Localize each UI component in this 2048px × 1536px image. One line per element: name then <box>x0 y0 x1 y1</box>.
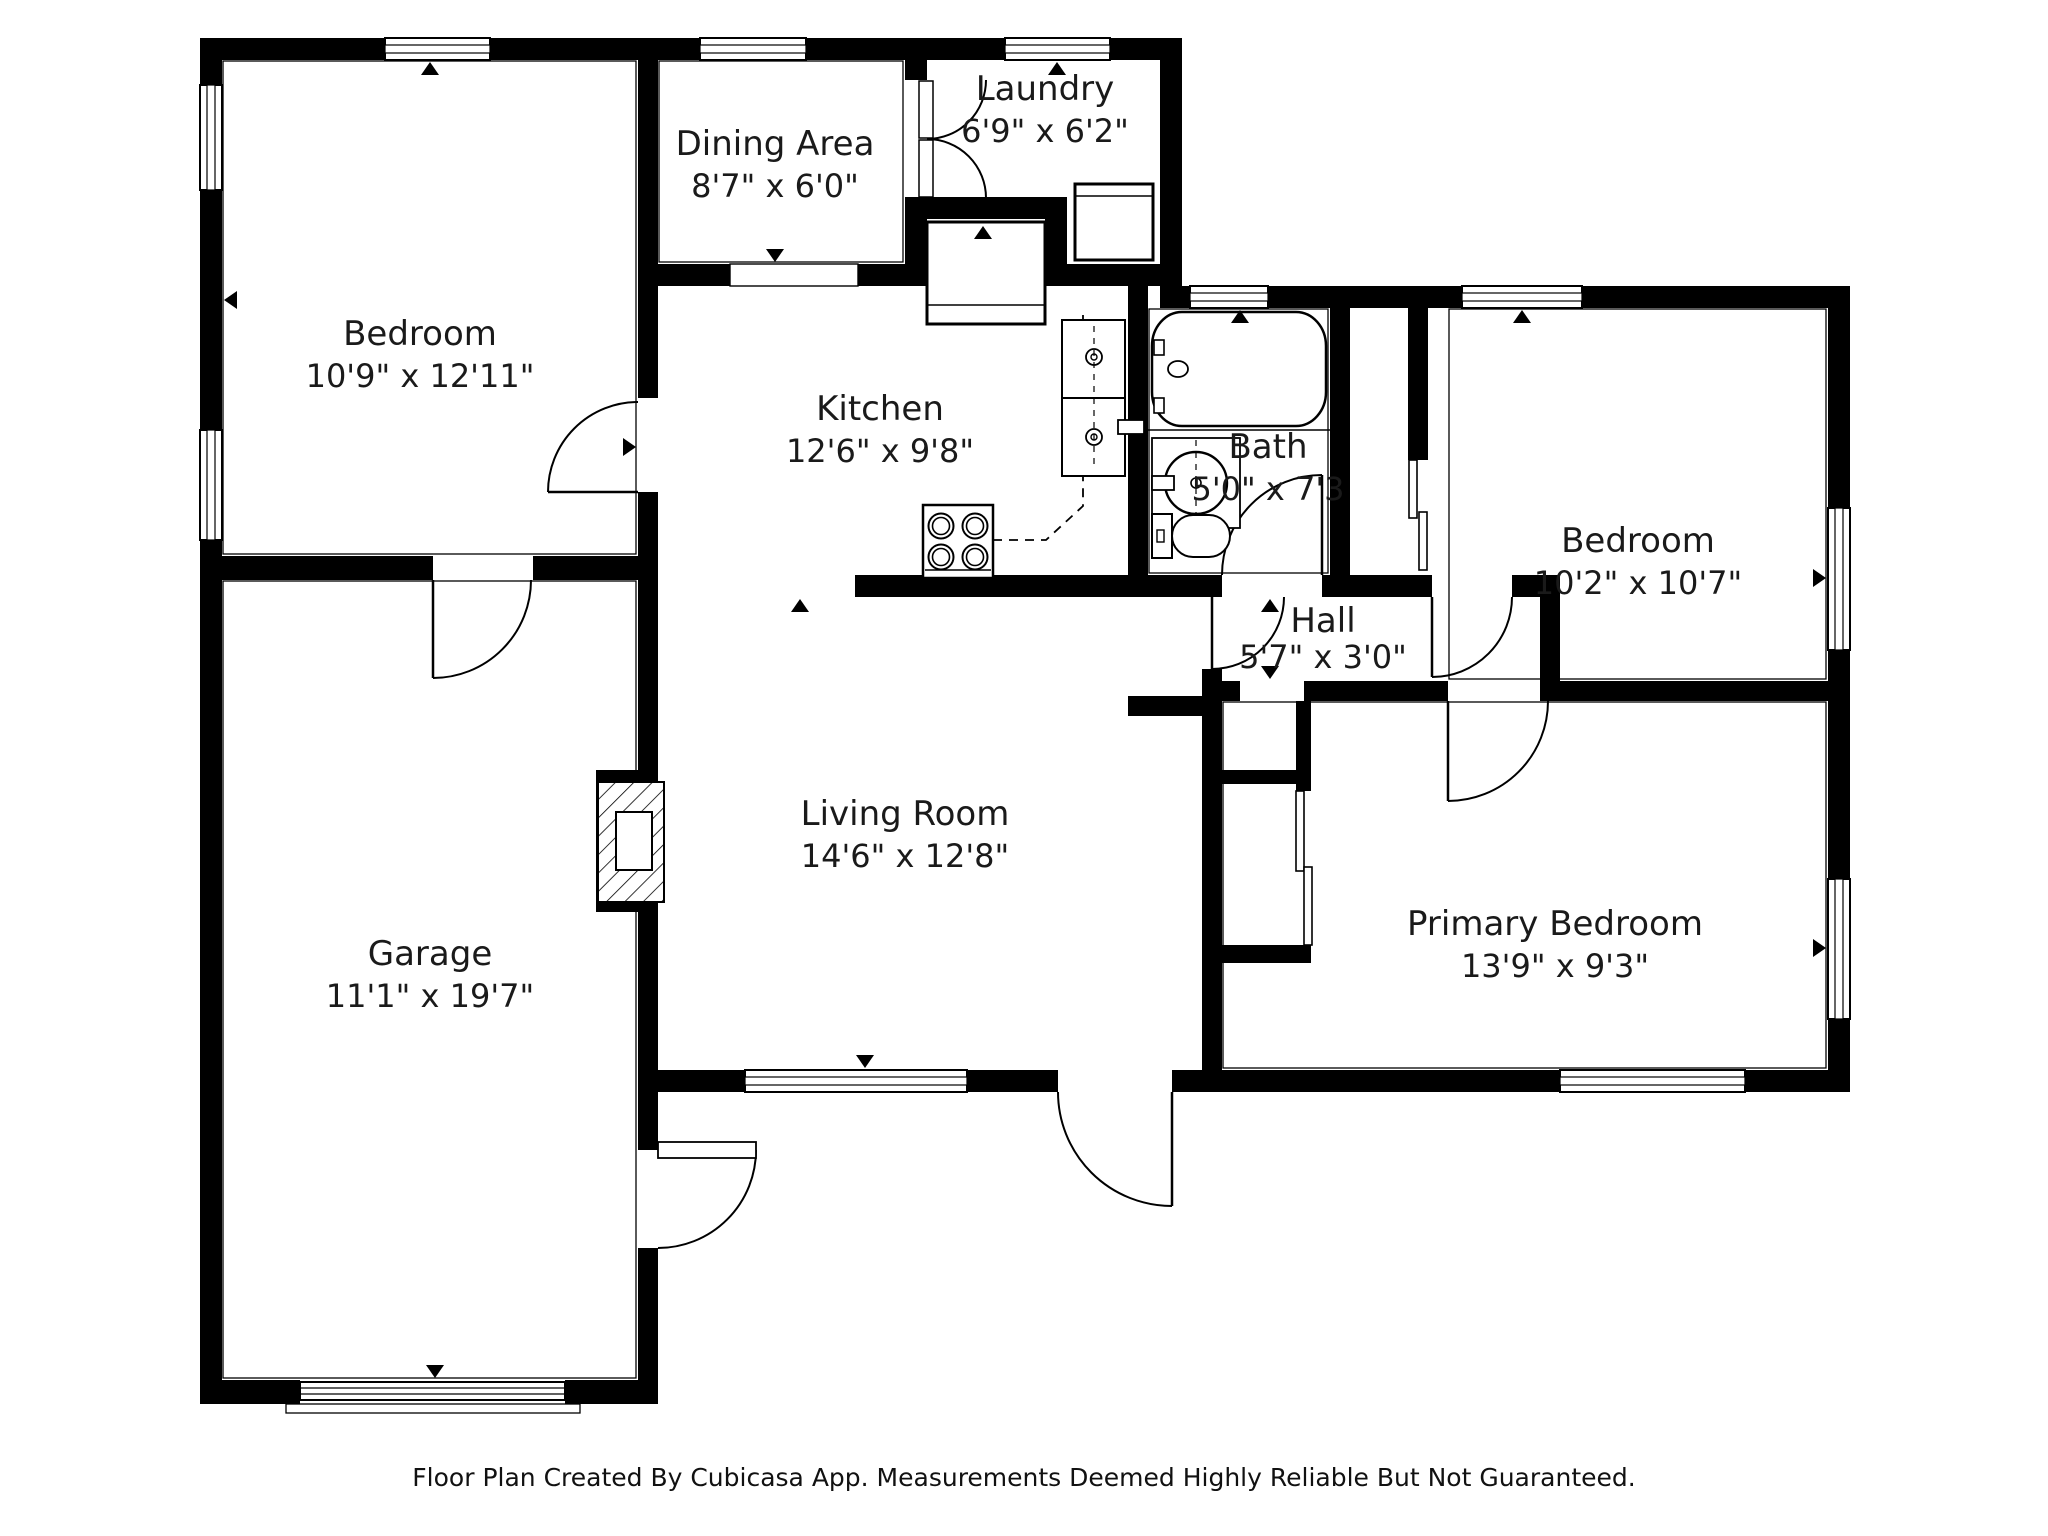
room-dims-laundry: 6'9" x 6'2" <box>961 112 1129 150</box>
window-bedroom-left-2 <box>200 430 222 540</box>
window-bedroom-right-top <box>1462 286 1582 308</box>
window-primary-bottom <box>1560 1070 1745 1092</box>
room-dims-kitchen: 12'6" x 9'8" <box>786 432 974 470</box>
room-dims-garage: 11'1" x 19'7" <box>326 977 534 1015</box>
room-dims-bath: 5'0" x 7'3 <box>1191 470 1344 508</box>
dining-kitchen-opening <box>730 264 858 286</box>
stove <box>923 505 993 578</box>
room-dims-hall: 5'7" x 3'0" <box>1239 638 1407 676</box>
room-dims-bedroom-right: 10'2" x 10'7" <box>1534 564 1742 602</box>
room-label-living-room: Living Room <box>801 794 1010 834</box>
window-living-bottom <box>745 1070 967 1092</box>
washer <box>1075 184 1153 260</box>
room-label-kitchen: Kitchen <box>816 389 944 429</box>
toilet <box>1152 514 1230 558</box>
room-label-dining-area: Dining Area <box>676 124 875 164</box>
room-label-bedroom-right: Bedroom <box>1561 521 1715 561</box>
floor-plan-page: Bedroom 10'9" x 12'11" Dining Area 8'7" … <box>0 0 2048 1536</box>
floor-plan-drawing: Bedroom 10'9" x 12'11" Dining Area 8'7" … <box>0 0 2048 1536</box>
fireplace <box>598 782 664 902</box>
window-bath-top <box>1190 286 1268 308</box>
room-label-garage: Garage <box>368 934 493 974</box>
room-label-bath: Bath <box>1228 427 1307 467</box>
garage-door <box>286 1382 580 1413</box>
room-dims-living-room: 14'6" x 12'8" <box>801 837 1009 875</box>
window-dining-top <box>700 38 806 60</box>
footer-disclaimer: Floor Plan Created By Cubicasa App. Meas… <box>412 1463 1635 1492</box>
room-dims-dining-area: 8'7" x 6'0" <box>691 167 859 205</box>
window-primary-right-side <box>1828 879 1850 1019</box>
room-label-primary-bedroom: Primary Bedroom <box>1407 904 1703 944</box>
bathtub <box>1148 312 1330 430</box>
window-bedroom-right-side <box>1828 508 1850 650</box>
window-laundry-top <box>1005 38 1110 60</box>
room-dims-primary-bedroom: 13'9" x 9'3" <box>1461 947 1649 985</box>
window-bedroom-top <box>385 38 490 60</box>
room-label-bedroom-top-left: Bedroom <box>343 314 497 354</box>
room-label-hall: Hall <box>1290 601 1355 641</box>
room-label-laundry: Laundry <box>976 69 1115 109</box>
room-dims-bedroom-top-left: 10'9" x 12'11" <box>306 357 535 395</box>
window-bedroom-left-1 <box>200 85 222 190</box>
